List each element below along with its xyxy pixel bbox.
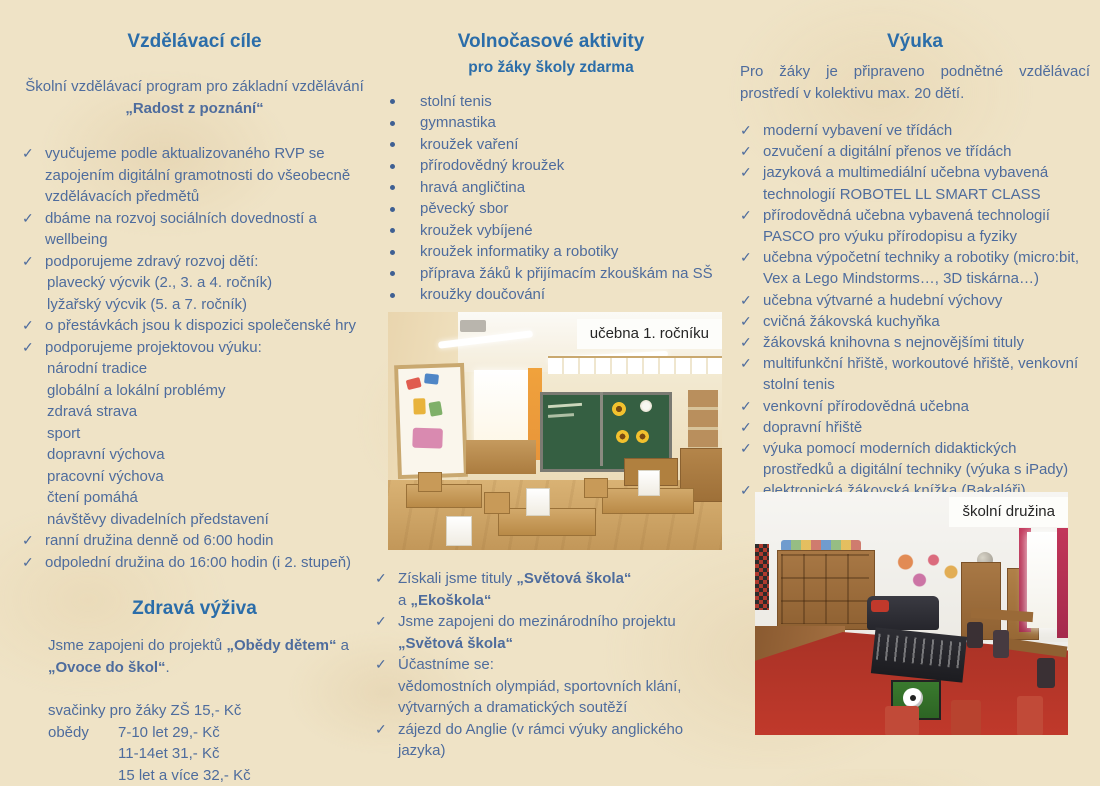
check-icon: ✓	[22, 530, 45, 552]
list-item: ✓ozvučení a digitální přenos ve třídách	[740, 141, 1090, 162]
chalkboard-divider	[600, 392, 603, 466]
list-item: ✓jazyková a multimediální učebna vybaven…	[740, 162, 1090, 204]
soccer-ball-patch	[910, 695, 916, 701]
list-item: ✓ vyučujeme podle aktualizovaného RVP se…	[22, 143, 367, 208]
dark-chair	[993, 630, 1009, 658]
bullet-icon	[390, 185, 395, 190]
list-item: ✓ o přestávkách jsou k dispozici společe…	[22, 315, 367, 337]
poster-doodle	[406, 377, 422, 390]
check-icon: ✓	[22, 208, 45, 230]
poster-doodle	[424, 373, 439, 384]
section-title-vyuka: Výuka	[740, 30, 1090, 54]
projector	[460, 320, 486, 332]
sub-list-item: čtení pomáhá	[22, 487, 367, 509]
photo-caption-classroom: učebna 1. ročníku	[577, 319, 722, 349]
bullet-icon	[390, 271, 395, 276]
check-icon: ✓	[375, 568, 398, 590]
lunch-price-line: 11-14et 31,- Kč	[118, 743, 251, 765]
list-item: ✓moderní vybavení ve třídách	[740, 120, 1090, 141]
poster-doodle	[413, 398, 426, 414]
sub-list-item: lyžařský výcvik (5. a 7. ročník)	[22, 294, 367, 316]
sub-list-item: pracovní výchova	[22, 466, 367, 488]
list-item: stolní tenis	[375, 91, 727, 113]
check-icon: ✓	[740, 141, 763, 162]
check-icon: ✓	[740, 396, 763, 417]
title-ekoskola: „Ekoškola“	[411, 592, 492, 609]
list-item: kroužky doučování	[375, 284, 727, 306]
list-item: kroužek vybíjené	[375, 220, 727, 242]
bullet-icon	[390, 99, 395, 104]
nutrition-intro: Jsme zapojeni do projektů „Obědy dětem“ …	[48, 635, 367, 678]
intro-line1: Školní vzdělávací program pro základní v…	[22, 76, 367, 98]
check-icon: ✓	[375, 611, 398, 633]
check-icon: ✓	[375, 654, 398, 676]
sub-list-item: návštěvy divadelních představení	[22, 509, 367, 531]
list-item: ✓dopravní hřiště	[740, 417, 1090, 438]
lunch-price-lines: 7-10 let 29,- Kč 11-14et 31,- Kč 15 let …	[118, 722, 251, 786]
list-item: ✓ Jsme zapojeni do mezinárodního projekt…	[375, 611, 727, 654]
list-item: ✓žákovská knihovna s nejnovějšími tituly	[740, 332, 1090, 353]
teaching-intro: Pro žáky je připraveno podnětné vzděláva…	[740, 61, 1090, 104]
features-list: ✓moderní vybavení ve třídách ✓ozvučení a…	[740, 120, 1090, 502]
chessboard-poster	[755, 544, 769, 610]
project-svetova-skola: „Světová škola“	[398, 635, 513, 652]
check-icon: ✓	[740, 162, 763, 183]
snack-price-line: svačinky pro žáky ZŠ 15,- Kč	[48, 700, 367, 722]
red-pillow	[871, 600, 889, 612]
check-icon: ✓	[740, 290, 763, 311]
check-icon: ✓	[740, 353, 763, 374]
poster-doodle	[412, 428, 443, 449]
shelf-cubbies	[781, 554, 869, 624]
dark-chair	[1037, 658, 1055, 688]
poster-doodle	[428, 401, 442, 417]
school-program-intro: Školní vzdělávací program pro základní v…	[22, 76, 367, 119]
cloud-drawing	[640, 400, 652, 412]
bullet-icon	[390, 228, 395, 233]
list-item: ✓ Získali jsme tituly „Světová škola“a „…	[375, 568, 727, 611]
achievements-list: ✓ Získali jsme tituly „Světová škola“a „…	[375, 568, 727, 762]
list-item: ✓ zájezd do Anglie (v rámci výuky anglic…	[375, 719, 727, 762]
lunch-price-line: 7-10 let 29,- Kč	[118, 722, 251, 744]
red-chair	[1017, 696, 1043, 735]
sub-list-item: dopravní výchova	[22, 444, 367, 466]
classroom-photo: učebna 1. ročníku	[388, 312, 722, 550]
school-chair	[584, 478, 608, 498]
list-item: ✓ dbáme na rozvoj sociálních dovedností …	[22, 208, 367, 251]
section-subtitle-free-for-pupils: pro žáky školy zdarma	[375, 57, 727, 79]
school-chair	[418, 472, 442, 492]
red-chair	[951, 700, 981, 735]
column-educational-goals: Vzdělávací cíle Školní vzdělávací progra…	[22, 30, 367, 786]
list-item: ✓cvičná žákovská kuchyňka	[740, 311, 1090, 332]
check-icon: ✓	[740, 205, 763, 226]
list-item: pěvecký sbor	[375, 198, 727, 220]
list-item: ✓ podporujeme zdravý rozvoj dětí:	[22, 251, 367, 273]
photo-caption-afterschool: školní družina	[949, 497, 1068, 527]
list-item: kroužek informatiky a robotiky	[375, 241, 727, 263]
sub-list-item: sport	[22, 423, 367, 445]
check-icon: ✓	[22, 337, 45, 359]
list-item: ✓ odpolední družina do 16:00 hodin (i 2.…	[22, 552, 367, 574]
activities-list: stolní tenis gymnastika kroužek vaření p…	[375, 91, 727, 306]
teacher-desk	[466, 440, 536, 474]
nutrition-block: Jsme zapojeni do projektů „Obědy dětem“ …	[22, 635, 367, 786]
sub-list-item: globální a lokální problémy	[22, 380, 367, 402]
white-gift-bag	[526, 488, 550, 516]
school-chair	[484, 492, 510, 514]
title-svetova-skola: „Světová škola“	[516, 570, 631, 587]
section-title-zdrava-vyziva: Zdravá výživa	[22, 597, 367, 621]
check-icon: ✓	[740, 311, 763, 332]
list-item: ✓ podporujeme projektovou výuku:	[22, 337, 367, 359]
bullet-icon	[390, 207, 395, 212]
sub-list-item: plavecký výcvik (2., 3. a 4. ročník)	[22, 272, 367, 294]
intro-line2-program-name: „Radost z poznání“	[22, 98, 367, 120]
list-item: ✓výuka pomocí moderních didaktických pro…	[740, 438, 1090, 480]
list-item: ✓ ranní družina denně od 6:00 hodin	[22, 530, 367, 552]
sub-list-item: zdravá strava	[22, 401, 367, 423]
check-icon: ✓	[22, 552, 45, 574]
bullet-icon	[390, 250, 395, 255]
afterschool-club-photo: školní družina	[755, 492, 1068, 735]
white-gift-bag	[638, 470, 660, 496]
list-item: ✓přírodovědná učebna vybavená technologi…	[740, 205, 1090, 247]
list-item: gymnastika	[375, 112, 727, 134]
check-icon: ✓	[740, 120, 763, 141]
sub-list-item: národní tradice	[22, 358, 367, 380]
list-item: ✓učebna výtvarné a hudební výchovy	[740, 290, 1090, 311]
check-icon: ✓	[375, 719, 398, 741]
list-item: hravá angličtina	[375, 177, 727, 199]
sunflower-drawing	[616, 430, 629, 443]
check-icon: ✓	[740, 247, 763, 268]
check-icon: ✓	[740, 438, 763, 459]
red-curtain	[1057, 528, 1068, 638]
column-leisure-activities: Volnočasové aktivity pro žáky školy zdar…	[375, 30, 727, 306]
numbers-poster	[394, 363, 468, 479]
sunflower-drawing	[612, 402, 626, 416]
project-name-ovoce-do-skol: „Ovoce do škol“	[48, 659, 166, 676]
bullet-icon	[390, 164, 395, 169]
column-teaching: Výuka Pro žáky je připraveno podnětné vz…	[740, 30, 1090, 502]
check-icon: ✓	[22, 143, 45, 165]
goals-list: ✓ vyučujeme podle aktualizovaného RVP se…	[22, 143, 367, 573]
list-item: ✓multifunkční hřiště, workoutové hřiště,…	[740, 353, 1090, 395]
bullet-icon	[390, 293, 395, 298]
list-item: ✓učebna výpočetní techniky a robotiky (m…	[740, 247, 1090, 289]
dark-chair	[967, 622, 983, 648]
check-icon: ✓	[22, 315, 45, 337]
bullet-icon	[390, 121, 395, 126]
project-name-obedy-detem: „Obědy dětem“	[226, 637, 336, 654]
list-item: ✓venkovní přírodovědná učebna	[740, 396, 1090, 417]
lunch-price-line: 15 let a více 32,- Kč	[118, 765, 251, 786]
alphabet-frieze	[548, 356, 722, 374]
lunch-prices: obědy 7-10 let 29,- Kč 11-14et 31,- Kč 1…	[48, 722, 367, 786]
check-icon: ✓	[740, 332, 763, 353]
list-item: příprava žáků k přijímacím zkouškám na S…	[375, 263, 727, 285]
white-gift-bag	[446, 516, 472, 546]
section-title-volnocasove-aktivity: Volnočasové aktivity	[375, 30, 727, 54]
sunflower-drawing	[636, 430, 649, 443]
bullet-icon	[390, 142, 395, 147]
wall-pictures	[688, 390, 718, 450]
section-title-vzdelavaci-cile: Vzdělávací cíle	[22, 30, 367, 54]
list-item: přírodovědný kroužek	[375, 155, 727, 177]
lunch-label: obědy	[48, 722, 118, 786]
wall-decorations	[895, 554, 965, 594]
list-item: kroužek vaření	[375, 134, 727, 156]
check-icon: ✓	[740, 417, 763, 438]
check-icon: ✓	[22, 251, 45, 273]
red-chair	[885, 706, 919, 735]
list-item: ✓ Účastníme se:vědomostních olympiád, sp…	[375, 654, 727, 719]
